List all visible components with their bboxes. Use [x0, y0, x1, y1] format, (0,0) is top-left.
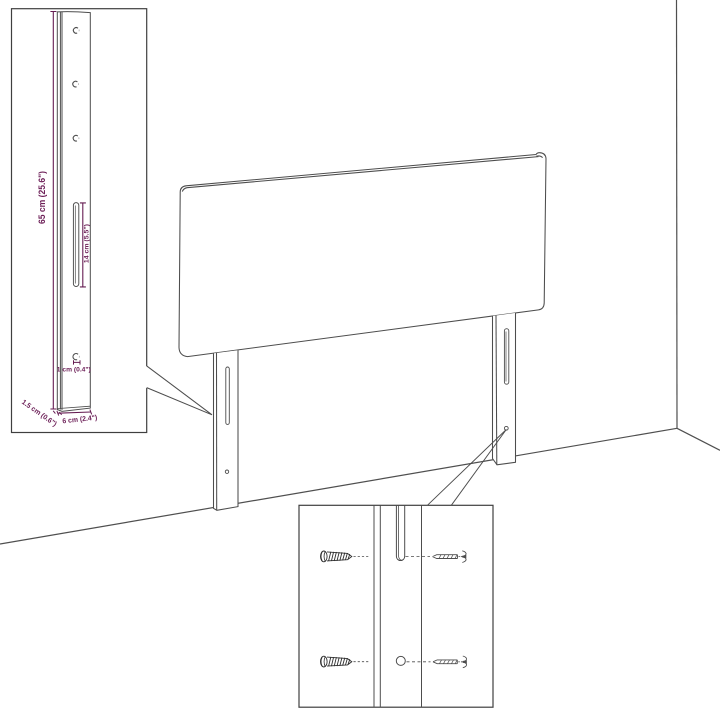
svg-text:1 cm (0.4"): 1 cm (0.4") — [57, 367, 91, 374]
svg-text:65 cm (25.6"): 65 cm (25.6") — [37, 171, 47, 224]
svg-text:14 cm (5.5"): 14 cm (5.5") — [84, 224, 91, 263]
